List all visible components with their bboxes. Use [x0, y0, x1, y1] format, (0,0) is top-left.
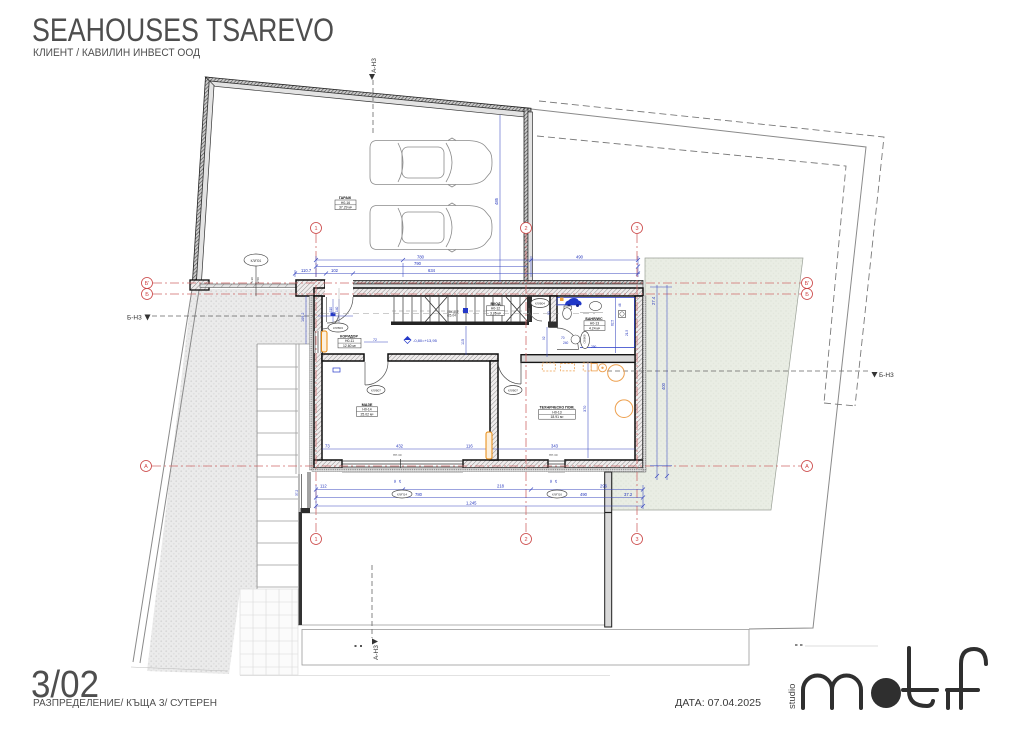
svg-text:60: 60	[549, 479, 553, 483]
svg-text:82.5: 82.5	[611, 320, 615, 326]
svg-text:37.29 м²: 37.29 м²	[339, 206, 353, 210]
svg-text:Н0-13: Н0-13	[552, 410, 561, 414]
svg-text:КЛ/В07: КЛ/В07	[508, 389, 518, 393]
svg-text:/25.04: /25.04	[447, 314, 456, 318]
svg-text:110: 110	[329, 307, 333, 312]
svg-text:490: 490	[576, 255, 584, 260]
svg-text:Б: Б	[145, 292, 149, 298]
svg-text:780: 780	[415, 492, 423, 497]
svg-text:Б: Б	[805, 292, 809, 298]
svg-text:А: А	[805, 464, 809, 470]
svg-text:109.2: 109.2	[301, 312, 305, 322]
svg-text:Б': Б'	[145, 281, 150, 287]
svg-text:27.4: 27.4	[651, 296, 656, 305]
svg-text:37.2: 37.2	[295, 490, 299, 496]
svg-text:140: 140	[335, 306, 339, 312]
svg-text:КЛ/П14: КЛ/П14	[397, 493, 407, 497]
svg-text:780: 780	[417, 255, 425, 260]
svg-text:240: 240	[563, 341, 569, 345]
svg-text:Н0-13: Н0-13	[590, 322, 599, 326]
svg-text:2: 2	[524, 226, 527, 232]
svg-text:КЛ/П01: КЛ/П01	[251, 259, 262, 263]
svg-text:25: 25	[398, 479, 402, 483]
svg-text:КЛ/В07: КЛ/В07	[371, 389, 381, 393]
svg-text:ПП.30: ПП.30	[549, 453, 558, 457]
svg-text:110.7: 110.7	[301, 268, 312, 273]
svg-text:ДАТА: 07.04.2025: ДАТА: 07.04.2025	[675, 697, 761, 709]
svg-text:21.5: 21.5	[625, 330, 629, 336]
svg-text:СВ/В08: СВ/В08	[583, 334, 587, 343]
svg-text:Н0-16: Н0-16	[341, 201, 350, 205]
svg-text:3: 3	[635, 226, 638, 232]
svg-text:102: 102	[331, 268, 339, 273]
svg-text:-0,80=+13,95: -0,80=+13,95	[413, 338, 438, 343]
svg-text:1,245: 1,245	[466, 501, 477, 506]
svg-text:Б-Н3: Б-Н3	[879, 372, 894, 379]
svg-text:90: 90	[547, 311, 551, 315]
svg-text:Б-Н3: Б-Н3	[127, 315, 142, 322]
svg-text:КЛ/В04: КЛ/В04	[535, 302, 545, 306]
svg-text:КОРИДОР: КОРИДОР	[340, 335, 358, 339]
svg-text:А-Н3: А-Н3	[371, 58, 378, 73]
svg-text:25: 25	[554, 479, 558, 483]
svg-text:А-Н3: А-Н3	[373, 645, 380, 660]
svg-text:ВХОД: ВХОД	[490, 302, 501, 306]
svg-text:790: 790	[414, 261, 422, 266]
svg-text:634: 634	[428, 268, 436, 273]
svg-text:ГАРАЖ: ГАРАЖ	[339, 196, 352, 200]
svg-text:2: 2	[524, 537, 527, 543]
svg-text:КЛ/П16: КЛ/П16	[552, 493, 562, 497]
svg-text:SEAHOUSES TSAREVO: SEAHOUSES TSAREVO	[32, 12, 334, 48]
svg-text:116: 116	[466, 444, 473, 449]
svg-text:ПП.30: ПП.30	[393, 453, 402, 457]
svg-text:46: 46	[618, 303, 622, 307]
svg-text:5.30: 5.30	[250, 277, 254, 283]
svg-text:218: 218	[497, 484, 505, 489]
svg-text:КЛ/В03: КЛ/В03	[333, 326, 343, 330]
svg-text:73: 73	[325, 444, 330, 449]
svg-text:25.02 м²: 25.02 м²	[361, 413, 375, 417]
svg-text:37.2: 37.2	[624, 492, 633, 497]
svg-text:112: 112	[320, 484, 327, 489]
svg-text:18.91 м²: 18.91 м²	[551, 415, 565, 419]
svg-text:ТЕХНИЧЕСКО ПОМ.: ТЕХНИЧЕСКО ПОМ.	[539, 405, 574, 409]
svg-text:485: 485	[494, 197, 499, 205]
svg-text:БАНЯ/WC: БАНЯ/WC	[585, 317, 603, 321]
svg-text:370: 370	[583, 406, 587, 412]
svg-text:12.60 м²: 12.60 м²	[343, 344, 357, 348]
svg-text:КЛИЕНТ / КАВИЛИН ИНВЕСТ ООД: КЛИЕНТ / КАВИЛИН ИНВЕСТ ООД	[33, 47, 201, 59]
svg-text:92: 92	[542, 336, 546, 340]
svg-text:290: 290	[591, 345, 597, 349]
svg-text:МАЗЕ: МАЗЕ	[362, 403, 373, 407]
svg-text:400: 400	[661, 382, 666, 390]
svg-text:Н0-11: Н0-11	[345, 339, 354, 343]
svg-text:296: 296	[600, 484, 608, 489]
svg-text:432: 432	[396, 444, 404, 449]
svg-text:4.24 м²: 4.24 м²	[589, 327, 601, 331]
svg-text:490: 490	[580, 492, 588, 497]
svg-text:1: 1	[314, 226, 317, 232]
svg-text:Б': Б'	[805, 281, 810, 287]
svg-text:А: А	[144, 464, 148, 470]
svg-text:2.50: 2.50	[256, 277, 260, 283]
svg-text:Н0-12: Н0-12	[491, 307, 500, 311]
svg-text:1: 1	[314, 537, 317, 543]
svg-text:Н0-14: Н0-14	[362, 408, 371, 412]
svg-text:70: 70	[561, 336, 565, 340]
svg-text:115: 115	[461, 339, 465, 345]
svg-text:60: 60	[393, 479, 397, 483]
svg-text:3: 3	[635, 537, 638, 543]
svg-text:studio: studio	[787, 684, 798, 709]
svg-text:РАЗПРЕДЕЛЕНИЕ/ КЪЩА 3/ СУТЕРЕН: РАЗПРЕДЕЛЕНИЕ/ КЪЩА 3/ СУТЕРЕН	[33, 697, 217, 709]
svg-text:72: 72	[373, 338, 377, 342]
svg-text:343: 343	[551, 444, 559, 449]
